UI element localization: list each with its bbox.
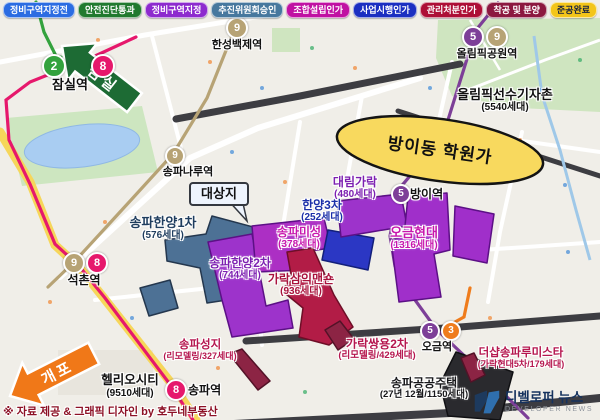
complex-detail: (378세대) (277, 239, 321, 250)
legend-item: 조합설립인가 (286, 2, 350, 18)
complex-detail: (리모델링/429세대) (338, 351, 415, 361)
developer-news-logo-icon (473, 388, 501, 416)
legend-item: 관리처분인가 (420, 2, 484, 18)
complex-detail: (252세대) (301, 212, 343, 223)
station-name-olympic-park: 올림픽공원역 (457, 45, 518, 61)
station-name-hanseong-baekje: 한성백제역 (212, 36, 263, 52)
complex-detail: (480세대) (333, 189, 377, 200)
complex-label-thesharp-lumistar: 더샵송파루미스타 (가락현대5차/179세대) (478, 347, 564, 370)
complex-label-songpa-miseong: 송파미성 (378세대) (277, 226, 321, 250)
complex-name: 송파한양2차 (209, 257, 271, 270)
station-name-bangi: 방이역 (410, 185, 443, 202)
complex-detail: (5540세대) (457, 102, 553, 113)
complex-detail: (744세대) (209, 270, 271, 281)
status-legend: 정비구역지정전 안전진단통과 정비구역지정 추진위원회승인 조합설립인가 사업시… (0, 2, 600, 18)
complex-label-songpa-seongji: 송파성지 (리모델링/327세대) (163, 339, 236, 362)
complex-label-hanyang3: 한양3차 (252세대) (301, 199, 343, 223)
small-park (272, 28, 300, 52)
complex-name: 더샵송파루미스타 (478, 347, 564, 360)
station-bangi: 5 (391, 184, 411, 204)
complex-name: 송파성지 (163, 339, 236, 352)
station-name-jamsil: 잠실역 (52, 74, 88, 93)
complex-name: 송파한양1차 (129, 216, 196, 230)
complex-label-songpa-hanyang2: 송파한양2차 (744세대) (209, 257, 271, 281)
complex-label-songpa-hanyang1: 송파한양1차 (576세대) (129, 216, 196, 241)
legend-item: 안전진단통과 (78, 2, 142, 18)
developer-news-logo: 디벨로퍼 뉴스 DEVELOPER NEWS (473, 388, 593, 416)
station-songpa: 8 (165, 379, 187, 401)
station-name-songpanaru: 송파나루역 (163, 163, 214, 179)
legend-item: 정비구역지정 (145, 2, 209, 18)
complex-label-heliocity: 헬리오시티 (9510세대) (101, 374, 159, 399)
line-8-badge-icon: 8 (91, 54, 115, 78)
complex-name: 대림가락 (333, 176, 377, 189)
complex-label-garak-samik: 가락삼익맨숀 (936세대) (268, 273, 334, 297)
complex-label-garak-ssangyong2: 가락쌍용2차 (리모델링/429세대) (338, 338, 415, 362)
complex-detail: (1316세대) (390, 240, 438, 251)
complex-name: 한양3차 (301, 199, 343, 212)
complex-name: 오금현대 (390, 226, 438, 240)
complex-name: 헬리오시티 (101, 374, 159, 388)
complex-detail: (리모델링/327세대) (163, 352, 236, 362)
complex-name: 올림픽선수기자촌 (457, 88, 553, 102)
station-name-seokchon: 석촌역 (67, 271, 100, 288)
legend-item: 준공완료 (550, 2, 597, 18)
complex-label-songpa-public-housing: 송파공공주택 (27년 12월/1150세대) (380, 377, 468, 401)
complex-name: 송파미성 (277, 226, 321, 239)
target-site-bubble: 대상지 (189, 182, 249, 206)
redevelopment-map: 방이동 학원가 잠실 개포 정비구역지정전 안전진단통과 정비구역지정 추진위원… (0, 0, 600, 420)
complex-detail: (27년 12월/1150세대) (380, 390, 468, 400)
legend-item: 추진위원회승인 (211, 2, 283, 18)
complex-label-daerim-garak: 대림가락 (480세대) (333, 176, 377, 200)
complex-detail: (576세대) (129, 230, 196, 241)
legend-item: 사업시행인가 (353, 2, 417, 18)
credit-text: ※ 자료 제공 & 그래픽 디자인 by 호두네부동산 (3, 403, 218, 419)
complex-name: 가락삼익맨숀 (268, 273, 334, 286)
complex-detail: (936세대) (268, 286, 334, 297)
station-name-ogeum: 오금역 (422, 338, 452, 354)
logo-korean-text: 디벨로퍼 뉴스 (505, 391, 593, 405)
complex-detail: (9510세대) (101, 388, 159, 399)
complex-label-ogeum-hyundai: 오금현대 (1316세대) (390, 226, 438, 251)
complex-detail: (가락현대5차/179세대) (478, 360, 564, 370)
station-name-songpa: 송파역 (188, 381, 221, 398)
legend-item: 정비구역지정전 (3, 2, 75, 18)
complex-shape-ogeum-hyundai-b (453, 206, 494, 263)
legend-item: 착공 및 분양 (486, 2, 546, 18)
logo-english-text: DEVELOPER NEWS (505, 406, 593, 413)
complex-label-olympic-village: 올림픽선수기자촌 (5540세대) (457, 88, 553, 113)
line-5-badge-icon: 5 (391, 184, 411, 204)
line-8-badge-icon: 8 (165, 379, 187, 401)
